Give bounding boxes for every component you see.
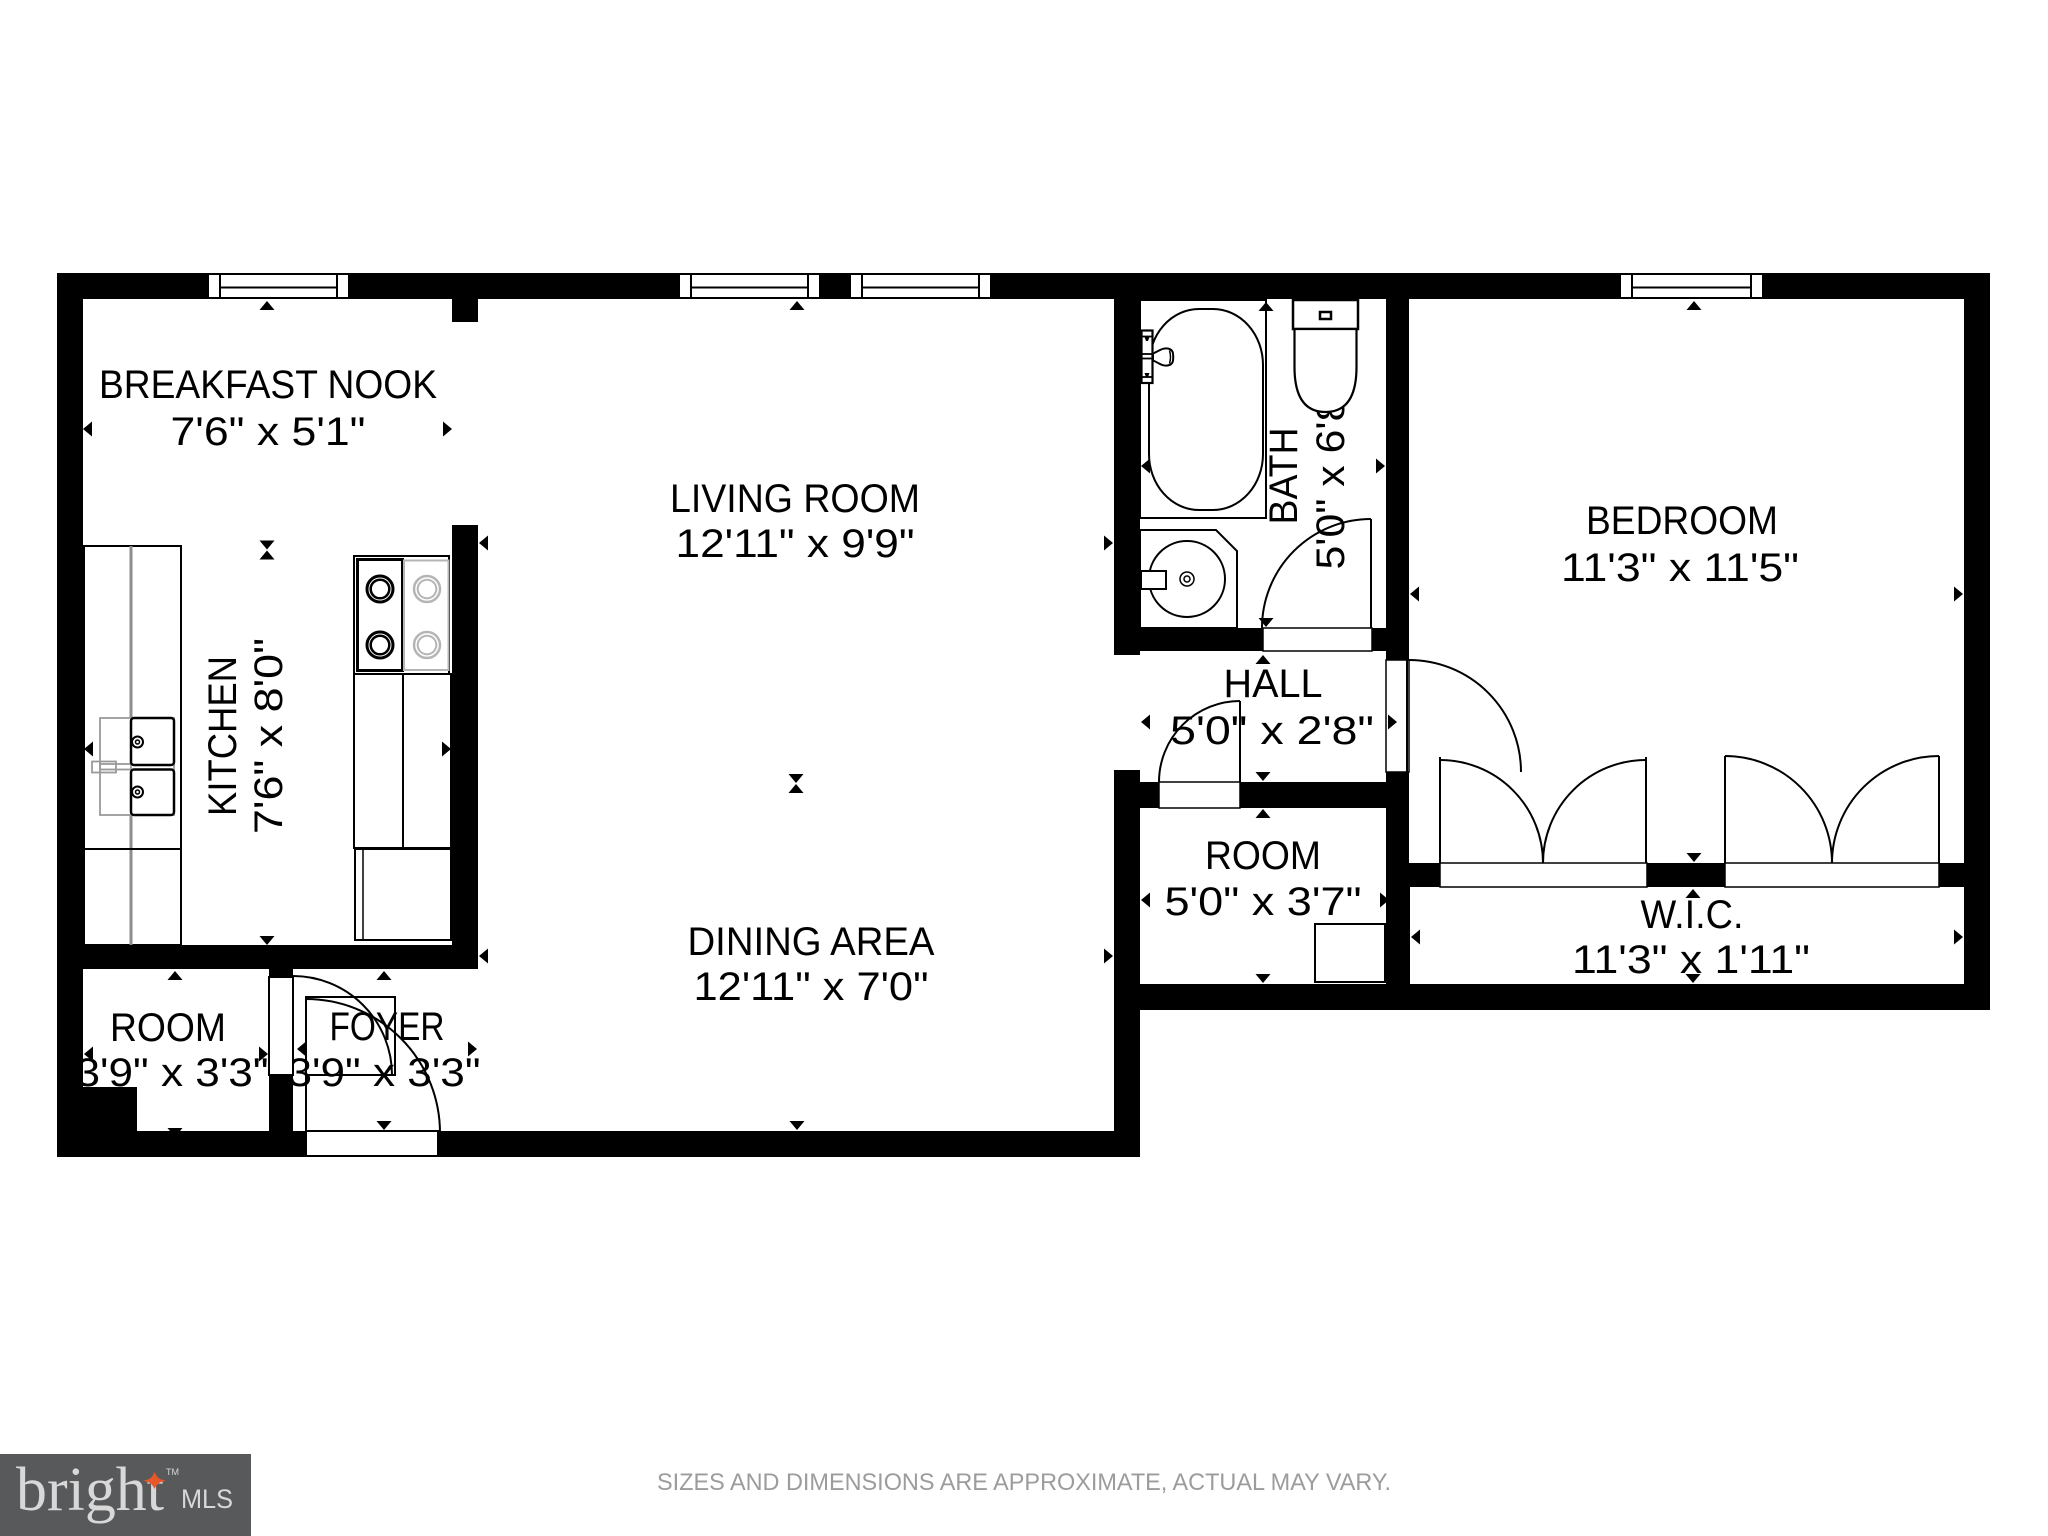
svg-text:BEDROOM: BEDROOM <box>1586 499 1778 543</box>
svg-text:3'9" x 3'3": 3'9" x 3'3" <box>288 1051 481 1095</box>
svg-text:bright: bright <box>16 1456 164 1524</box>
svg-text:11'3" x 11'5": 11'3" x 11'5" <box>1561 546 1799 590</box>
svg-text:5'0" x 2'8": 5'0" x 2'8" <box>1170 709 1374 753</box>
svg-text:LIVING ROOM: LIVING ROOM <box>670 477 920 521</box>
svg-text:DINING AREA: DINING AREA <box>688 920 935 964</box>
svg-text:W.I.C.: W.I.C. <box>1641 893 1744 937</box>
svg-text:SIZES AND DIMENSIONS ARE APPRO: SIZES AND DIMENSIONS ARE APPROXIMATE, AC… <box>657 1469 1391 1496</box>
svg-text:TM: TM <box>166 1467 179 1477</box>
svg-text:7'6" x 5'1": 7'6" x 5'1" <box>171 410 366 454</box>
svg-text:BATH: BATH <box>1262 428 1306 525</box>
svg-text:12'11" x 7'0": 12'11" x 7'0" <box>694 965 929 1009</box>
svg-text:ROOM: ROOM <box>1205 834 1321 878</box>
svg-text:7'6" x 8'0": 7'6" x 8'0" <box>247 638 291 834</box>
svg-text:KITCHEN: KITCHEN <box>201 656 245 816</box>
svg-text:5'0" x 3'7": 5'0" x 3'7" <box>1165 880 1362 924</box>
svg-text:HALL: HALL <box>1224 662 1323 706</box>
svg-text:MLS: MLS <box>181 1484 233 1514</box>
svg-text:BREAKFAST NOOK: BREAKFAST NOOK <box>99 363 437 407</box>
svg-text:12'11" x 9'9": 12'11" x 9'9" <box>676 522 915 566</box>
svg-text:ROOM: ROOM <box>110 1006 226 1050</box>
